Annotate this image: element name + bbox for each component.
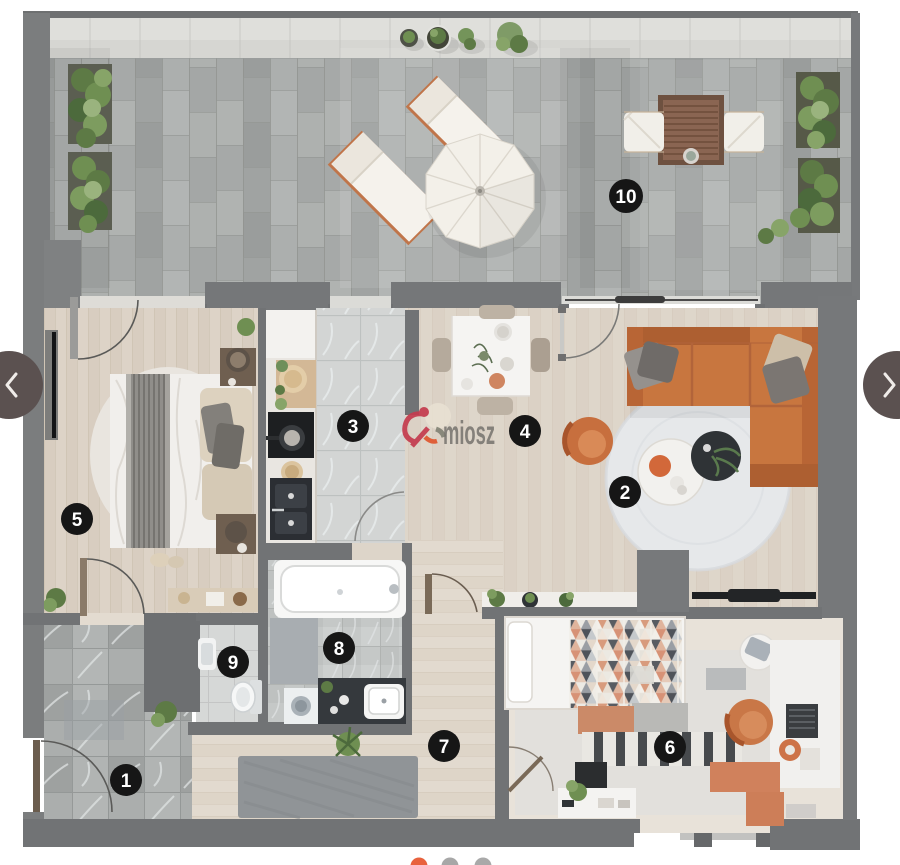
svg-text:3: 3 bbox=[348, 417, 359, 438]
svg-text:1: 1 bbox=[121, 771, 132, 792]
svg-text:2: 2 bbox=[620, 483, 631, 504]
svg-text:7: 7 bbox=[439, 737, 450, 758]
svg-text:6: 6 bbox=[665, 738, 676, 759]
svg-text:10: 10 bbox=[615, 187, 636, 208]
svg-text:8: 8 bbox=[334, 639, 345, 660]
svg-text:4: 4 bbox=[520, 422, 531, 443]
svg-text:5: 5 bbox=[72, 510, 83, 531]
svg-text:miosz: miosz bbox=[443, 414, 495, 451]
svg-text:9: 9 bbox=[228, 653, 239, 674]
